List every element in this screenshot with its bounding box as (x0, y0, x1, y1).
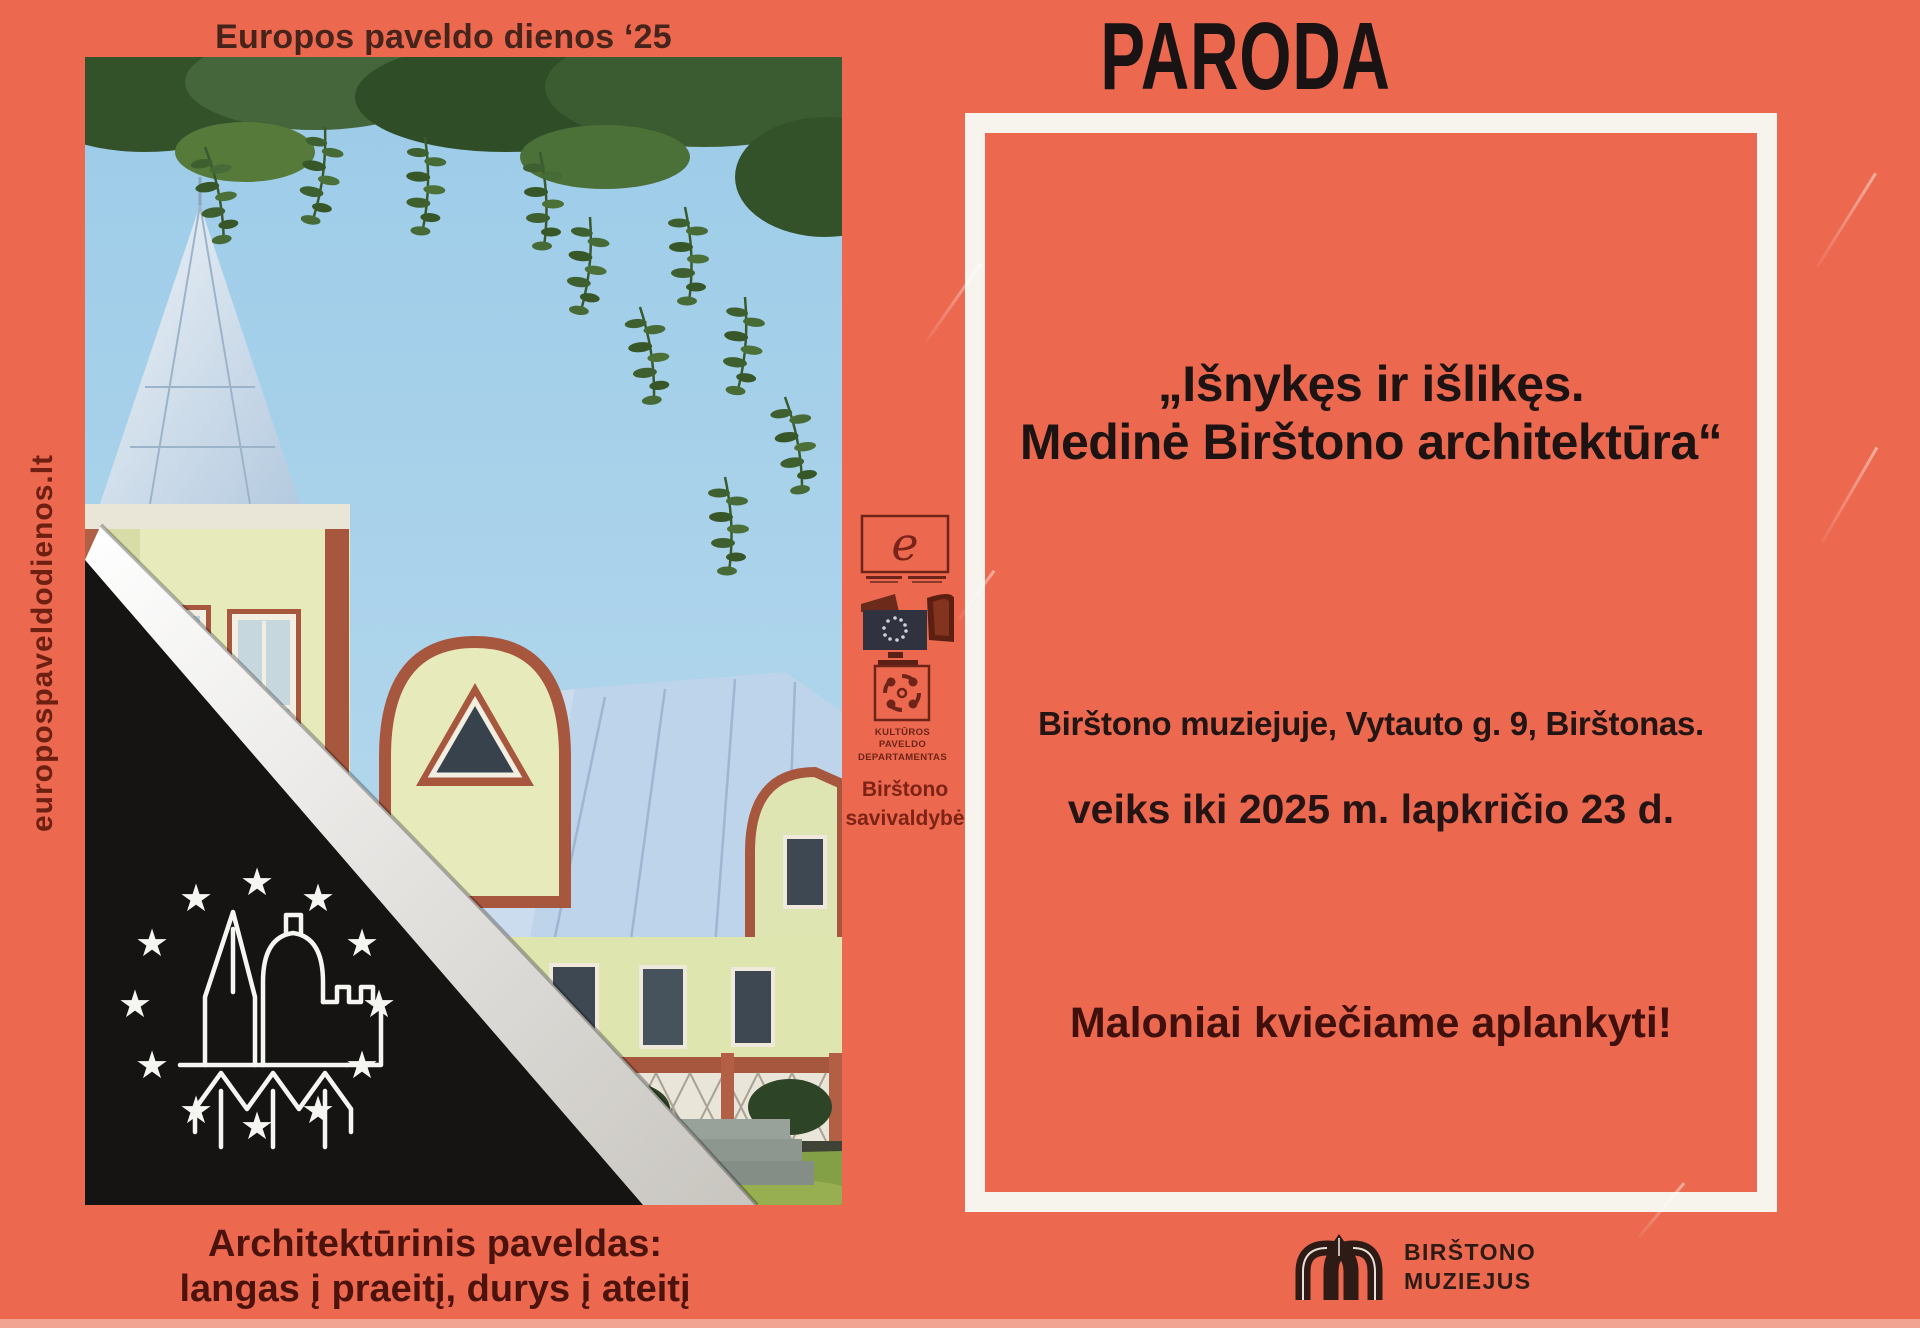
photo-caption: Architektūrinis paveldas: langas į praei… (35, 1222, 835, 1312)
exhibition-title: „Išnykęs ir išlikęs. Medinė Birštono arc… (985, 355, 1757, 471)
heritage-department-emblem (873, 664, 931, 722)
museum-arches-icon (1290, 1232, 1386, 1302)
exhibition-invitation: Maloniai kviečiame aplankyti! (985, 999, 1757, 1048)
page-title: PARODA (880, 2, 1610, 112)
svg-text:★: ★ (135, 921, 169, 965)
photo-caption-line2: langas į praeitį, durys į ateitį (35, 1267, 835, 1312)
page-title-text: PARODA (1100, 2, 1390, 112)
svg-text:★: ★ (240, 1104, 274, 1148)
svg-text:★: ★ (345, 921, 379, 965)
museum-logo: BIRŠTONO MUZIEJUS (1290, 1232, 1536, 1302)
paper-crease (1816, 173, 1877, 268)
paper-crease (1821, 447, 1879, 544)
poster-root: Europos paveldo dienos ‘25 PARODA europo… (0, 0, 1920, 1328)
exhibition-frame: „Išnykęs ir išlikęs. Medinė Birštono arc… (965, 113, 1777, 1212)
council-of-europe-logo: e (858, 512, 952, 584)
eu-flag-logo (853, 590, 963, 670)
villa-photo-scene: ★ ★ ★ ★ ★ ★ ★ ★ ★ ★ ★ ★ (85, 57, 842, 1205)
photo-caption-line1: Architektūrinis paveldas: (35, 1222, 835, 1267)
website-link: europospaveldodienos.lt (26, 408, 60, 878)
exhibition-venue: Birštono muziejuje, Vytauto g. 9, Biršto… (985, 705, 1757, 743)
heritage-department-caption: KULTŪROS PAVELDO DEPARTAMENTAS (845, 727, 960, 764)
exhibition-title-line2: Medinė Birštono architektūra“ (985, 413, 1757, 471)
municipality-label: Birštono savivaldybė (838, 775, 972, 834)
svg-text:e: e (891, 517, 918, 571)
event-title: Europos paveldo dienos ‘25 (65, 18, 822, 57)
svg-text:★: ★ (135, 1043, 169, 1087)
svg-text:★: ★ (240, 860, 274, 904)
svg-text:★: ★ (179, 876, 213, 920)
svg-text:★: ★ (301, 1088, 335, 1132)
villa-right-dormer (750, 772, 842, 957)
svg-text:★: ★ (118, 982, 152, 1026)
exhibition-dates: veiks iki 2025 m. lapkričio 23 d. (985, 786, 1757, 833)
exhibition-title-line1: „Išnykęs ir išlikęs. (985, 355, 1757, 413)
villa-photo: ★ ★ ★ ★ ★ ★ ★ ★ ★ ★ ★ ★ (85, 57, 842, 1205)
scan-bottom-edge (0, 1319, 1920, 1328)
museum-name: BIRŠTONO MUZIEJUS (1404, 1238, 1536, 1296)
svg-text:★: ★ (301, 876, 335, 920)
